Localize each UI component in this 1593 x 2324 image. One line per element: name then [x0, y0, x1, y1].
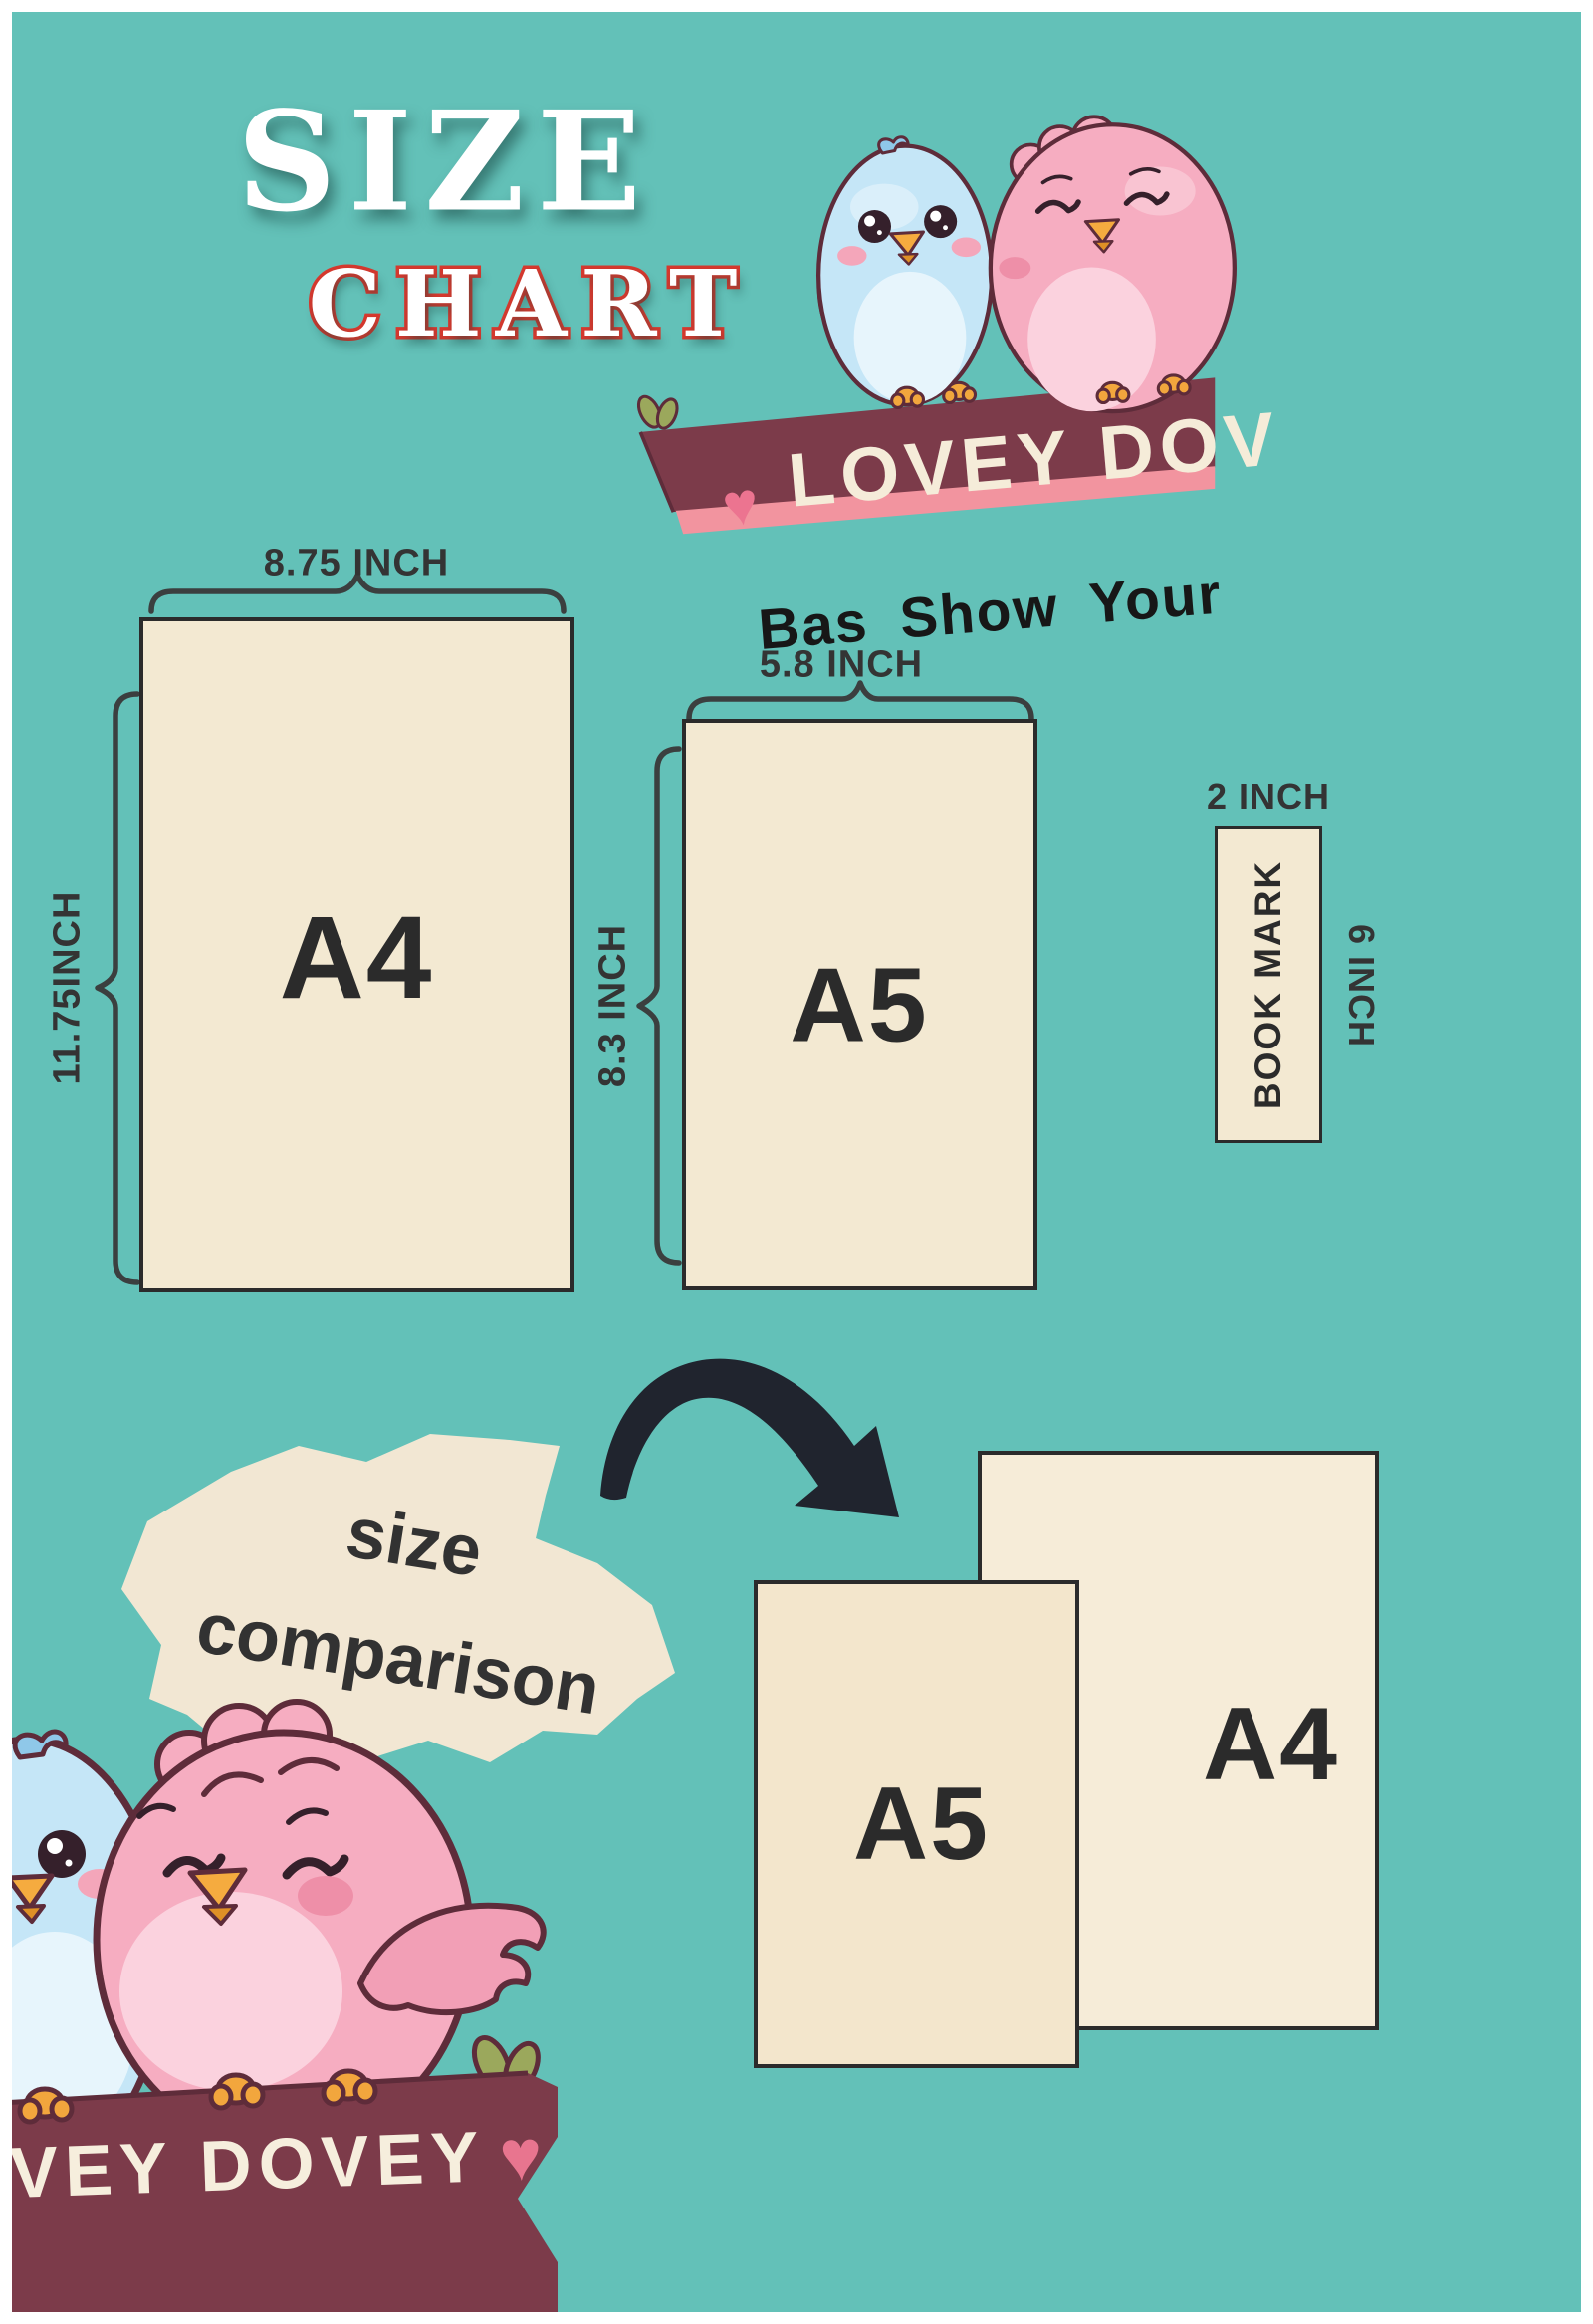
a4-label: A4 [280, 890, 434, 1026]
comparison-a4-label: A4 [1203, 1686, 1339, 1804]
bookmark-label: BOOK MARK [1248, 860, 1289, 1109]
a4-height-brace [98, 694, 137, 1282]
bookmark-width-label: 2 INCH [1207, 776, 1330, 817]
bird-couple-illustration-bottom [0, 1673, 558, 2324]
curved-arrow-icon [600, 1359, 899, 1517]
a4-height-label: 11.75INCH [47, 891, 90, 1085]
leaf-icon [634, 393, 681, 431]
pink-bird [991, 116, 1235, 411]
heart-icon: ♥ [484, 2115, 551, 2197]
a5-height-brace [639, 749, 679, 1263]
blue-bird [818, 137, 992, 408]
size-chart-poster: SIZE CHART [0, 0, 1593, 2324]
bookmark-height-label: 6 INCH [1340, 924, 1382, 1047]
comparison-a5-paper: A5 [754, 1580, 1079, 2068]
a4-width-label: 8.75 INCH [264, 543, 449, 585]
bottom-banner-label: VEY DOVEY [9, 2117, 487, 2213]
comparison-a5-label: A5 [853, 1765, 990, 1884]
a5-label: A5 [790, 946, 929, 1066]
poster-background: SIZE CHART [0, 0, 1593, 2324]
a5-height-label: 8.3 INCH [592, 924, 635, 1087]
